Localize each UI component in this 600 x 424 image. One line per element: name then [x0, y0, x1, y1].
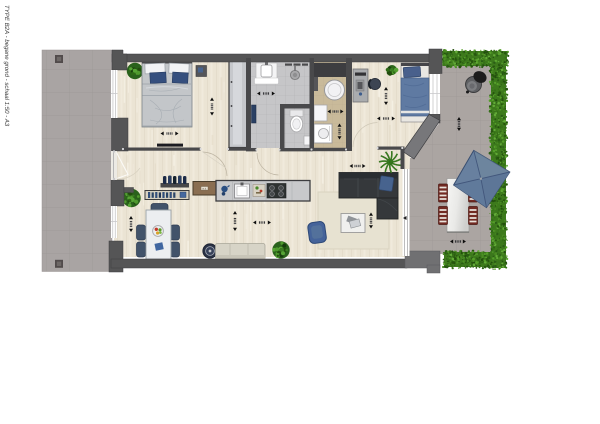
svg-text:TYPE B2A - begane grond -: TYPE B2A - begane grond - schaal 1:50 - …	[3, 5, 10, 127]
svg-text:m.k.: m.k.	[202, 187, 207, 190]
